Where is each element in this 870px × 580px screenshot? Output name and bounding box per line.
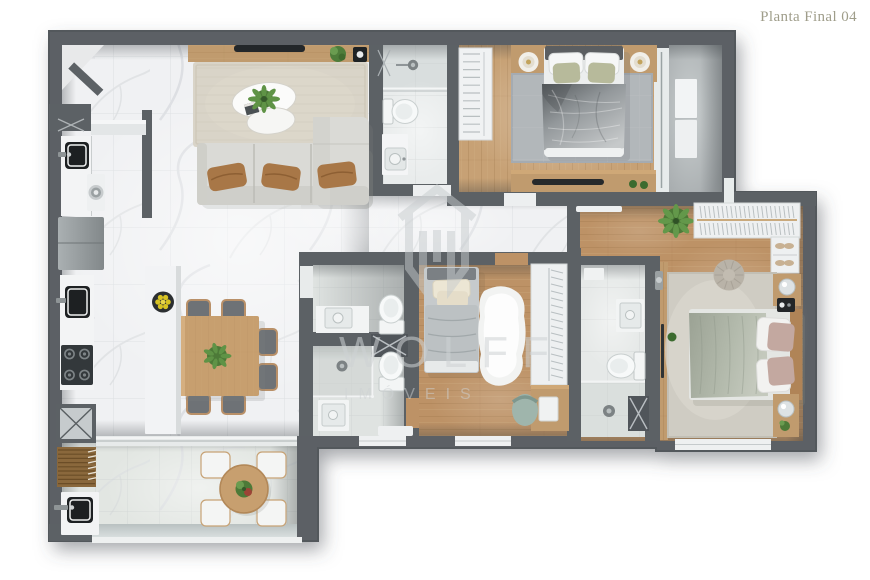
svg-text:IMÓVEIS: IMÓVEIS [344,384,481,403]
svg-text:WOLFF: WOLFF [339,328,563,377]
